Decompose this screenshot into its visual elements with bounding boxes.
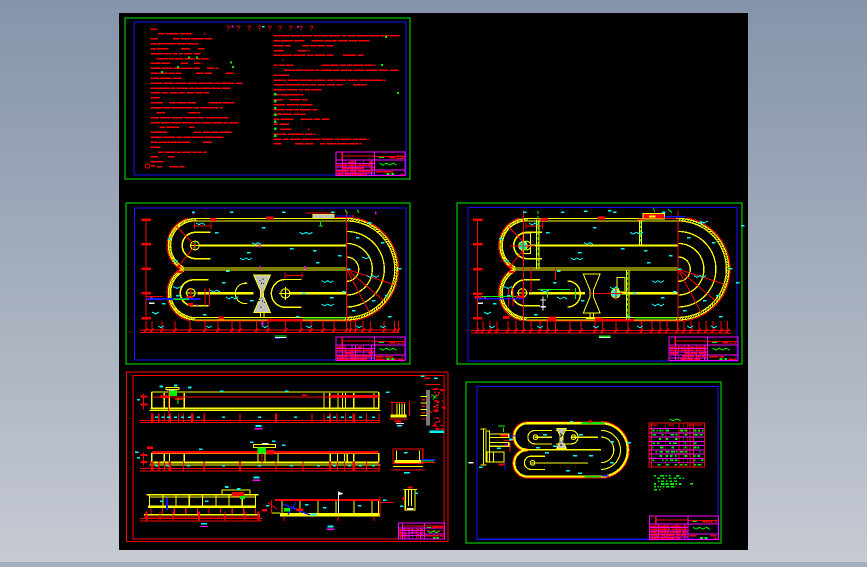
- svg-text:?: ?: [247, 24, 252, 33]
- svg-text:?: ?: [236, 24, 241, 33]
- svg-text:?: ?: [288, 24, 293, 33]
- svg-text:?: ?: [278, 24, 283, 33]
- svg-text:?: ?: [299, 24, 304, 33]
- svg-text:?: ?: [268, 24, 273, 33]
- svg-text:?: ?: [257, 24, 262, 33]
- svg-text:?: ?: [226, 24, 231, 33]
- svg-text:?: ?: [309, 24, 314, 33]
